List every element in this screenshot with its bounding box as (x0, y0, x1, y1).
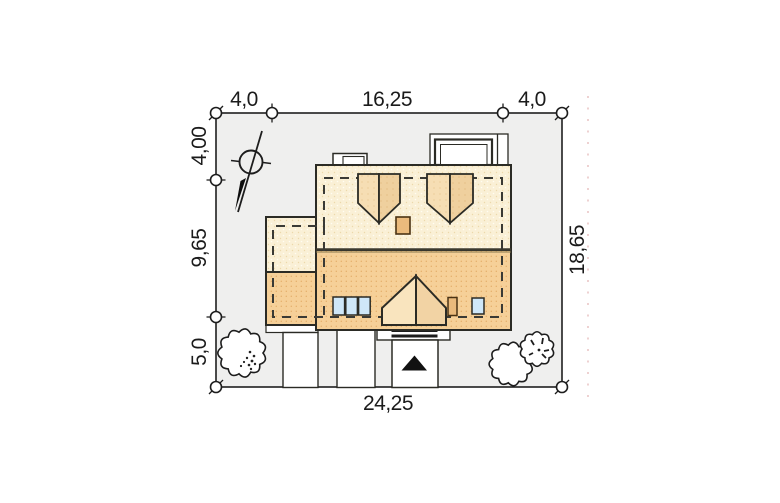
site-plan-page: 4,0 16,25 4,0 4,00 9,65 5,0 18,65 24,25 (0, 0, 780, 503)
roof-window-icon (333, 297, 345, 315)
tree-dot (538, 349, 541, 352)
dim-top-left: 4,0 (230, 88, 258, 111)
roof-vent-icon (333, 154, 367, 166)
driveway (283, 333, 318, 388)
entry-step (392, 335, 438, 338)
dim-left-top: 4,00 (188, 127, 211, 166)
terrace-railing (430, 134, 508, 165)
site-plan-canvas: 4,0 16,25 4,0 4,00 9,65 5,0 18,65 24,25 (0, 0, 780, 503)
paving-group (266, 325, 450, 388)
tree-icon (520, 332, 553, 367)
dim-top-middle: 16,25 (362, 88, 412, 111)
dim-bottom: 24,25 (363, 392, 413, 415)
chimney-icon (448, 298, 457, 316)
roof-window-icon (359, 297, 371, 315)
walkway (337, 330, 375, 388)
dim-top-right: 4,0 (518, 88, 546, 111)
roof-window-icon (472, 298, 484, 314)
roof-window-icon (346, 297, 358, 315)
chimney-icon (396, 217, 410, 234)
garage-apron (266, 325, 318, 333)
dim-right-side: 18,65 (566, 225, 589, 275)
dim-left-middle: 9,65 (188, 229, 211, 268)
dim-left-bottom: 5,0 (188, 338, 211, 366)
